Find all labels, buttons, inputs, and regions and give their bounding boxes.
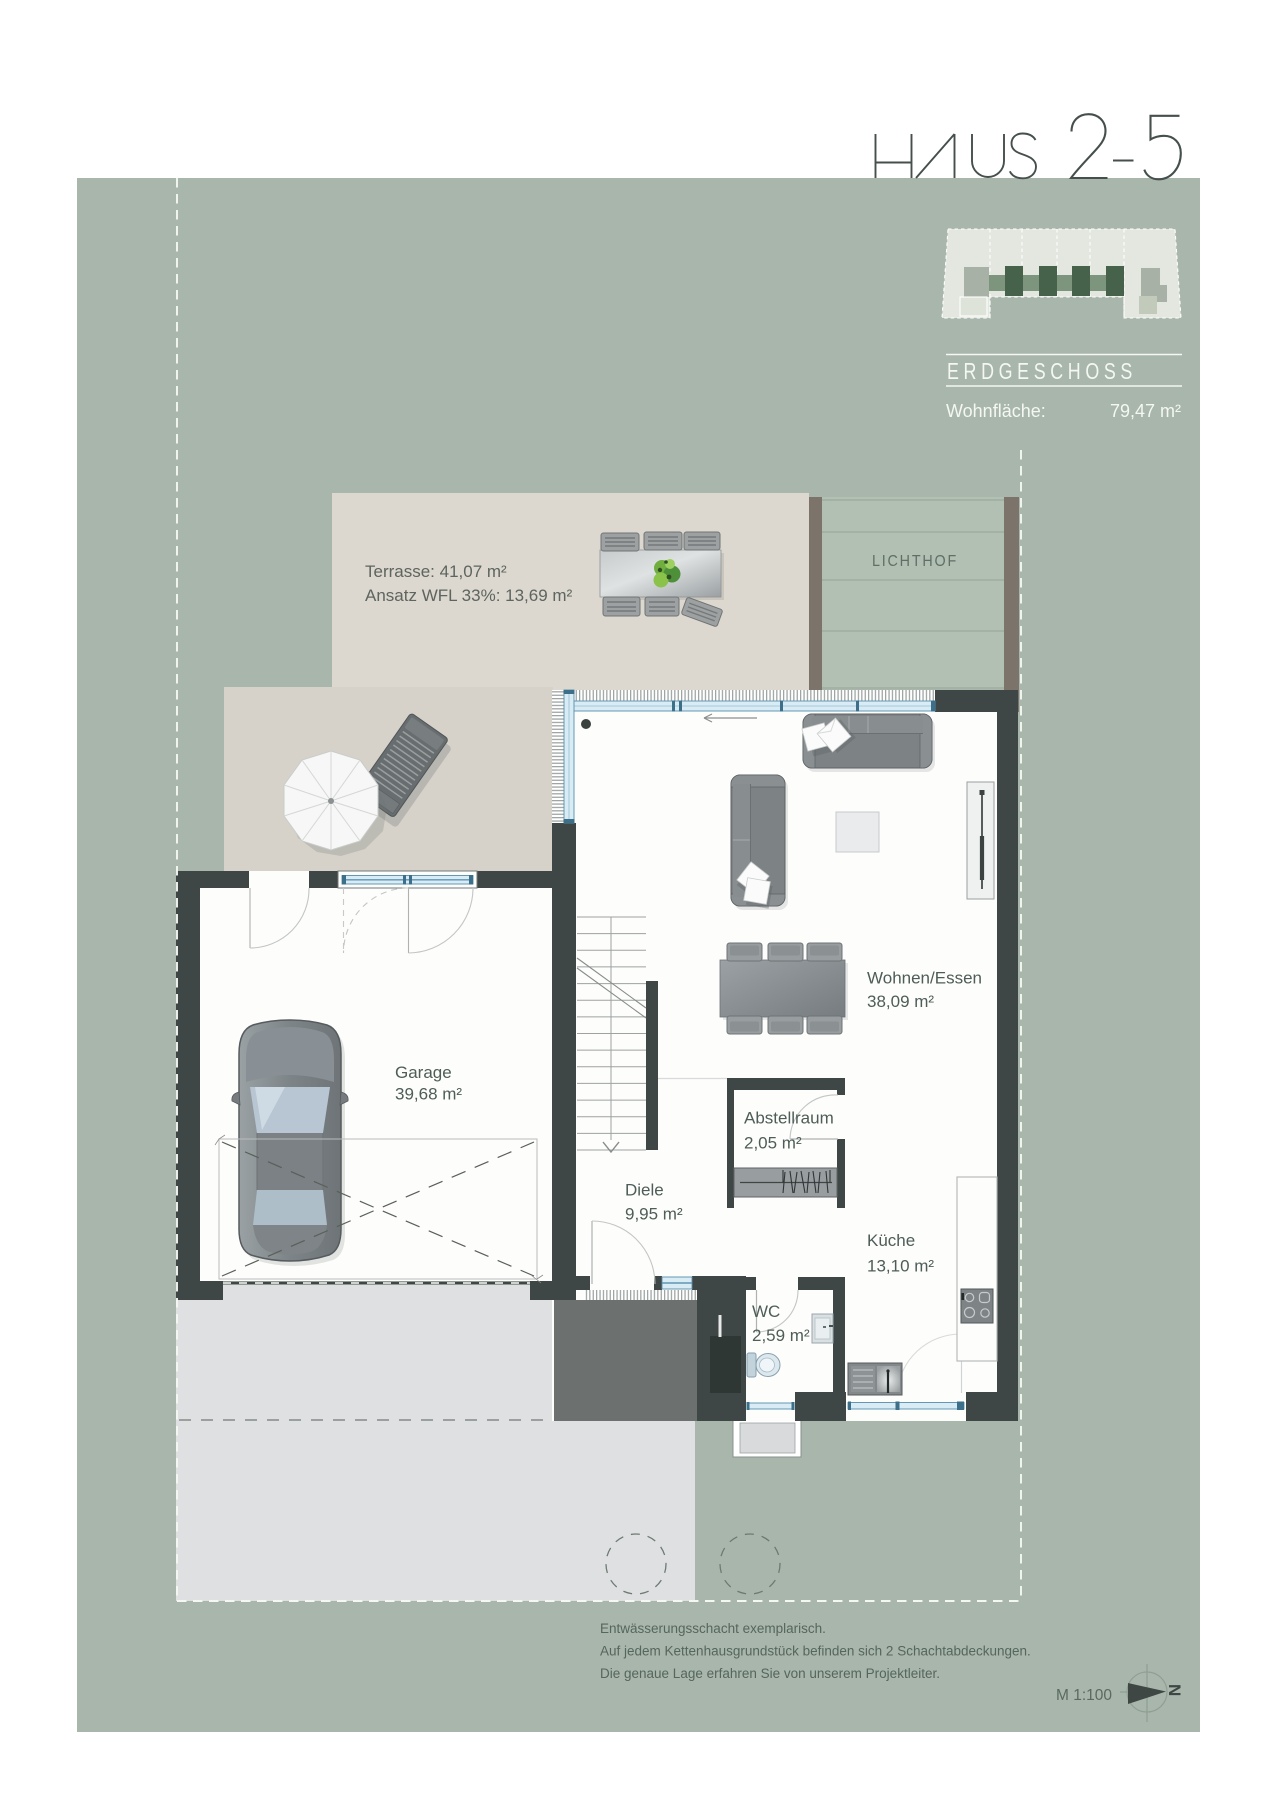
svg-text:N: N — [1165, 1684, 1184, 1696]
svg-text:39,68 m²: 39,68 m² — [395, 1085, 462, 1104]
svg-text:LICHTHOF: LICHTHOF — [872, 553, 958, 570]
svg-text:Wohnen/Essen: Wohnen/Essen — [867, 969, 982, 988]
svg-text:2,05 m²: 2,05 m² — [744, 1134, 802, 1153]
svg-text:ERDGESCHOSS: ERDGESCHOSS — [947, 358, 1137, 384]
svg-text:Wohnfläche:: Wohnfläche: — [946, 401, 1046, 421]
svg-text:2,59 m²: 2,59 m² — [752, 1326, 810, 1345]
svg-text:Küche: Küche — [867, 1231, 915, 1250]
svg-text:Entwässerungsschacht exemplari: Entwässerungsschacht exemplarisch. — [600, 1621, 826, 1636]
svg-text:Diele: Diele — [625, 1181, 664, 1200]
svg-text:79,47 m²: 79,47 m² — [1110, 401, 1181, 421]
svg-text:38,09 m²: 38,09 m² — [867, 992, 934, 1011]
svg-text:M 1:100: M 1:100 — [1056, 1687, 1112, 1704]
svg-text:13,10 m²: 13,10 m² — [867, 1257, 934, 1276]
svg-text:WC: WC — [752, 1302, 780, 1321]
svg-text:Abstellraum: Abstellraum — [744, 1109, 834, 1128]
svg-text:Garage: Garage — [395, 1063, 452, 1082]
svg-text:9,95 m²: 9,95 m² — [625, 1205, 683, 1224]
svg-text:Auf jedem Kettenhausgrundstück: Auf jedem Kettenhausgrundstück befinden … — [600, 1644, 1031, 1659]
svg-text:Terrasse: 41,07 m²: Terrasse: 41,07 m² — [365, 562, 507, 581]
svg-text:Die genaue Lage erfahren Sie v: Die genaue Lage erfahren Sie von unserem… — [600, 1666, 940, 1681]
svg-text:Ansatz WFL 33%: 13,69 m²: Ansatz WFL 33%: 13,69 m² — [365, 586, 573, 605]
